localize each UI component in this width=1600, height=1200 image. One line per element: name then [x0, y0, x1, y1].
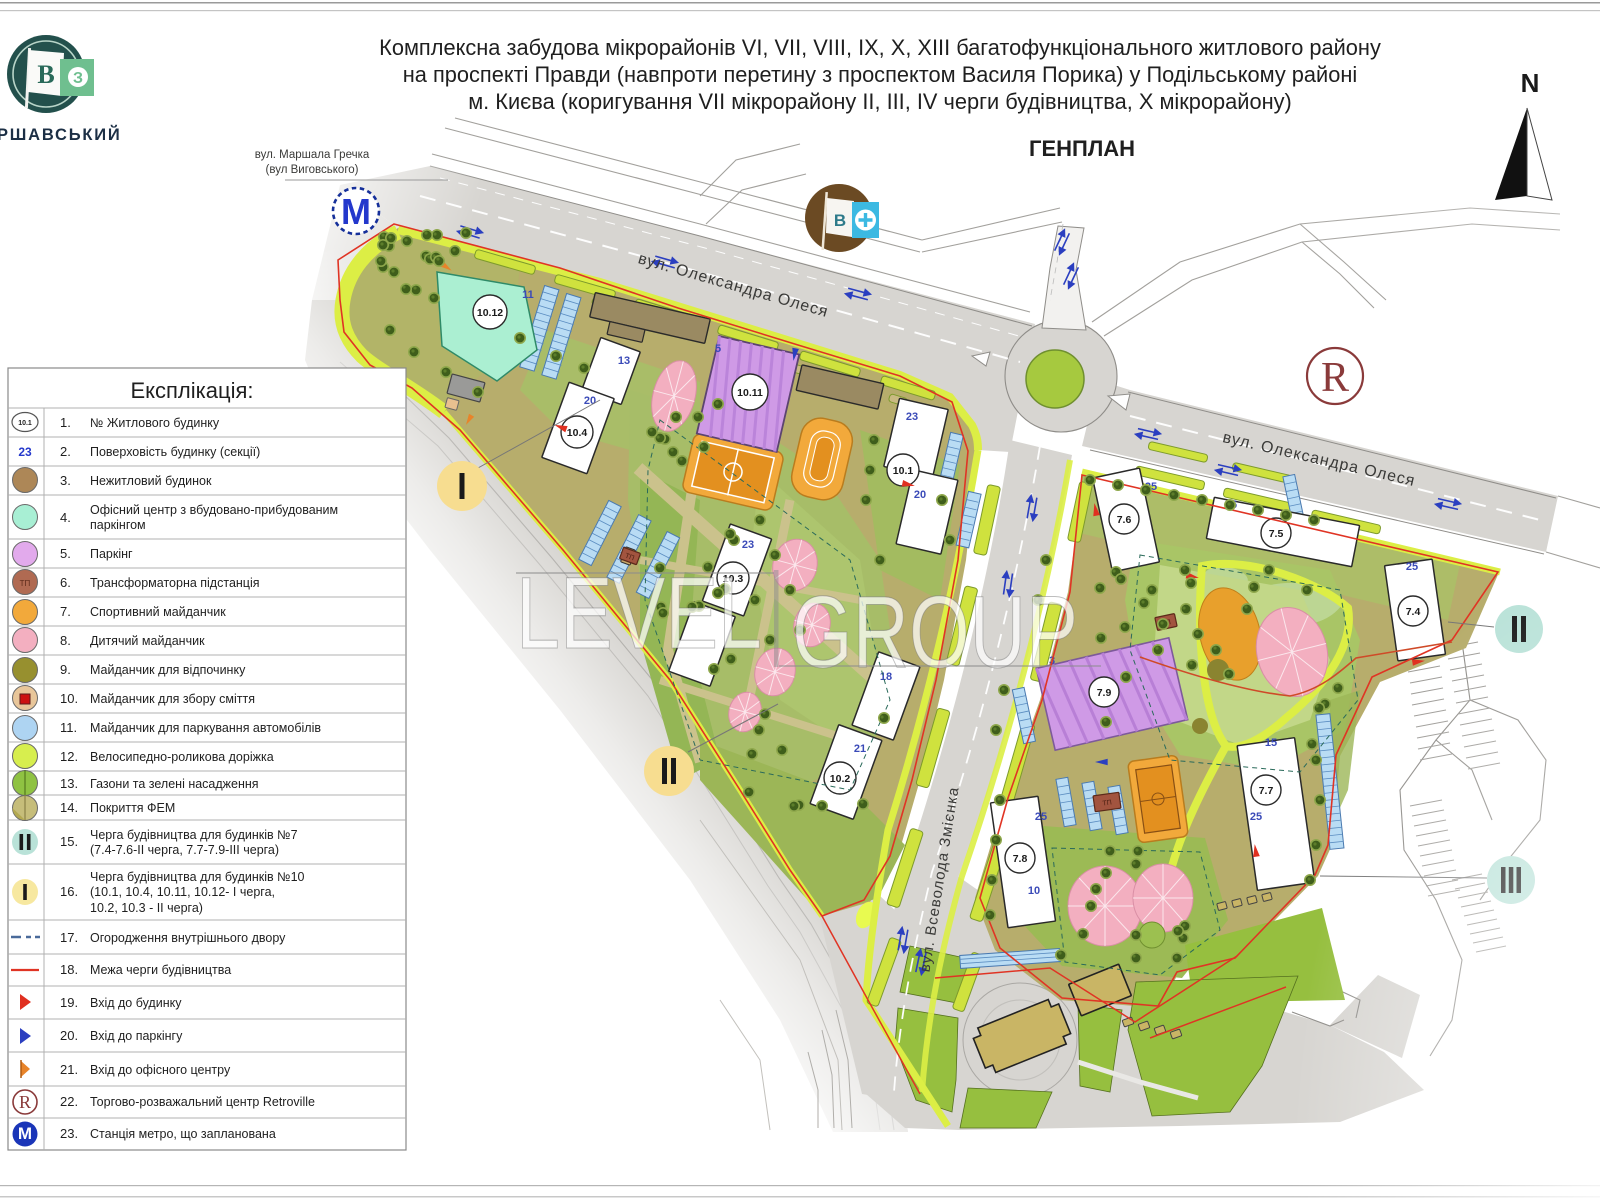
svg-text:10.12: 10.12 [477, 307, 503, 319]
svg-text:Черга будівництва для будинків: Черга будівництва для будинків №7 [90, 828, 298, 842]
svg-text:10.2: 10.2 [830, 773, 851, 785]
svg-text:(10.1, 10.4, 10.11, 10.12- І ч: (10.1, 10.4, 10.11, 10.12- І черга, [90, 885, 275, 899]
svg-text:19.: 19. [60, 995, 78, 1010]
svg-text:14.: 14. [60, 800, 78, 815]
svg-text:Вхід до паркінгу: Вхід до паркінгу [90, 1029, 183, 1043]
svg-text:7.7: 7.7 [1259, 785, 1274, 797]
svg-text:8.: 8. [60, 633, 71, 648]
svg-text:паркінгом: паркінгом [90, 518, 146, 532]
svg-text:В: В [37, 60, 54, 89]
svg-text:4.: 4. [60, 510, 71, 525]
svg-text:Газони та зелені насадження: Газони та зелені насадження [90, 777, 259, 791]
svg-text:11: 11 [522, 289, 534, 301]
svg-text:13.: 13. [60, 776, 78, 791]
svg-text:10.11: 10.11 [737, 387, 763, 399]
svg-text:R: R [1321, 355, 1349, 401]
svg-text:5: 5 [715, 343, 721, 355]
svg-text:Паркінг: Паркінг [90, 547, 133, 561]
svg-text:21: 21 [854, 743, 866, 755]
svg-text:Торгово-розважальний центр Ret: Торгово-розважальний центр Retroville [90, 1095, 315, 1109]
svg-text:7.: 7. [60, 604, 71, 619]
svg-text:22.: 22. [60, 1094, 78, 1109]
svg-text:РШАВСЬКИЙ: РШАВСЬКИЙ [0, 125, 122, 144]
svg-text:10.2, 10.3 - ІІ черга): 10.2, 10.3 - ІІ черга) [90, 901, 203, 915]
svg-text:11.: 11. [60, 720, 77, 735]
svg-text:25: 25 [1035, 811, 1047, 823]
svg-text:1.: 1. [60, 415, 71, 430]
svg-text:20.: 20. [60, 1028, 78, 1043]
svg-text:ГЕНПЛАН: ГЕНПЛАН [1029, 136, 1135, 161]
svg-text:(вул Виговського): (вул Виговського) [266, 164, 359, 176]
svg-text:7.9: 7.9 [1097, 687, 1112, 699]
svg-text:З: З [73, 70, 83, 87]
svg-text:Спортивний майданчик: Спортивний майданчик [90, 605, 226, 619]
svg-text:10.: 10. [60, 691, 78, 706]
svg-text:16.: 16. [60, 884, 78, 899]
svg-text:23.: 23. [60, 1126, 78, 1141]
svg-text:3.: 3. [60, 473, 71, 488]
svg-text:вул. Маршала Гречка: вул. Маршала Гречка [255, 149, 370, 161]
svg-text:М: М [341, 191, 371, 232]
svg-text:18.: 18. [60, 962, 78, 977]
svg-text:10.1: 10.1 [893, 465, 914, 477]
svg-text:Покриття ФЕМ: Покриття ФЕМ [90, 801, 175, 815]
svg-text:9.: 9. [60, 662, 71, 677]
svg-text:Вхід до офісного центру: Вхід до офісного центру [90, 1063, 231, 1077]
svg-text:Огородження внутрішнього двору: Огородження внутрішнього двору [90, 931, 286, 945]
svg-text:7.8: 7.8 [1013, 853, 1028, 865]
svg-text:12.: 12. [60, 749, 78, 764]
svg-text:(7.4-7.6-ІІ черга, 7.7-7.9-ІІІ: (7.4-7.6-ІІ черга, 7.7-7.9-ІІІ черга) [90, 843, 279, 857]
svg-text:10.1: 10.1 [18, 420, 32, 427]
svg-text:Межа черги будівництва: Межа черги будівництва [90, 963, 231, 977]
svg-text:Майданчик для відпочинку: Майданчик для відпочинку [90, 663, 246, 677]
svg-text:на проспекті Правди (навпроти: на проспекті Правди (навпроти перетину з… [403, 62, 1357, 87]
svg-text:Майданчик для паркування автом: Майданчик для паркування автомобілів [90, 721, 321, 735]
svg-text:23: 23 [906, 411, 918, 423]
svg-text:Дитячий майданчик: Дитячий майданчик [90, 634, 205, 648]
svg-text:Станція метро, що запланована: Станція метро, що запланована [90, 1127, 276, 1141]
svg-text:ТП: ТП [1102, 799, 1112, 807]
svg-text:20: 20 [914, 489, 926, 501]
svg-text:5.: 5. [60, 546, 71, 561]
svg-text:6.: 6. [60, 575, 71, 590]
svg-text:GROUP: GROUP [792, 575, 1078, 689]
svg-text:Вхід до будинку: Вхід до будинку [90, 996, 182, 1010]
svg-text:23: 23 [18, 445, 32, 459]
svg-text:17.: 17. [60, 930, 78, 945]
svg-text:ТП: ТП [20, 579, 31, 588]
svg-text:13: 13 [618, 355, 630, 367]
svg-text:Трансформаторна підстанція: Трансформаторна підстанція [90, 576, 260, 590]
svg-text:Черга будівництва для будинків: Черга будівництва для будинків №10 [90, 870, 305, 884]
svg-text:м. Києва (коригування VII мікр: м. Києва (коригування VII мікрорайону II… [468, 89, 1292, 114]
svg-text:R: R [19, 1092, 31, 1112]
svg-text:21.: 21. [60, 1062, 78, 1077]
svg-text:Поверховість будинку (секції): Поверховість будинку (секції) [90, 445, 260, 459]
svg-text:Офісний центр з вбудовано-приб: Офісний центр з вбудовано-прибудованим [90, 503, 338, 517]
svg-text:В: В [834, 211, 846, 230]
svg-text:7.6: 7.6 [1117, 514, 1132, 526]
svg-text:25: 25 [1250, 811, 1262, 823]
svg-text:10: 10 [1028, 885, 1040, 897]
svg-text:Нежитловий будинок: Нежитловий будинок [90, 474, 212, 488]
svg-text:М: М [18, 1124, 32, 1143]
svg-text:Велосипедно-роликова доріжка: Велосипедно-роликова доріжка [90, 750, 274, 764]
svg-text:10.4: 10.4 [567, 427, 588, 439]
svg-text:Майданчик для збору сміття: Майданчик для збору сміття [90, 692, 255, 706]
svg-text:N: N [1521, 68, 1540, 98]
svg-text:№ Житлового будинку: № Житлового будинку [90, 416, 220, 430]
svg-text:2.: 2. [60, 444, 71, 459]
svg-text:15: 15 [1265, 737, 1277, 749]
svg-text:23: 23 [742, 539, 754, 551]
svg-text:7.5: 7.5 [1269, 528, 1284, 540]
svg-text:15.: 15. [60, 834, 78, 849]
svg-text:Комплексна забудова мікрорайон: Комплексна забудова мікрорайонів VI, VII… [379, 35, 1381, 60]
svg-text:Експлікація:: Експлікація: [130, 378, 253, 403]
